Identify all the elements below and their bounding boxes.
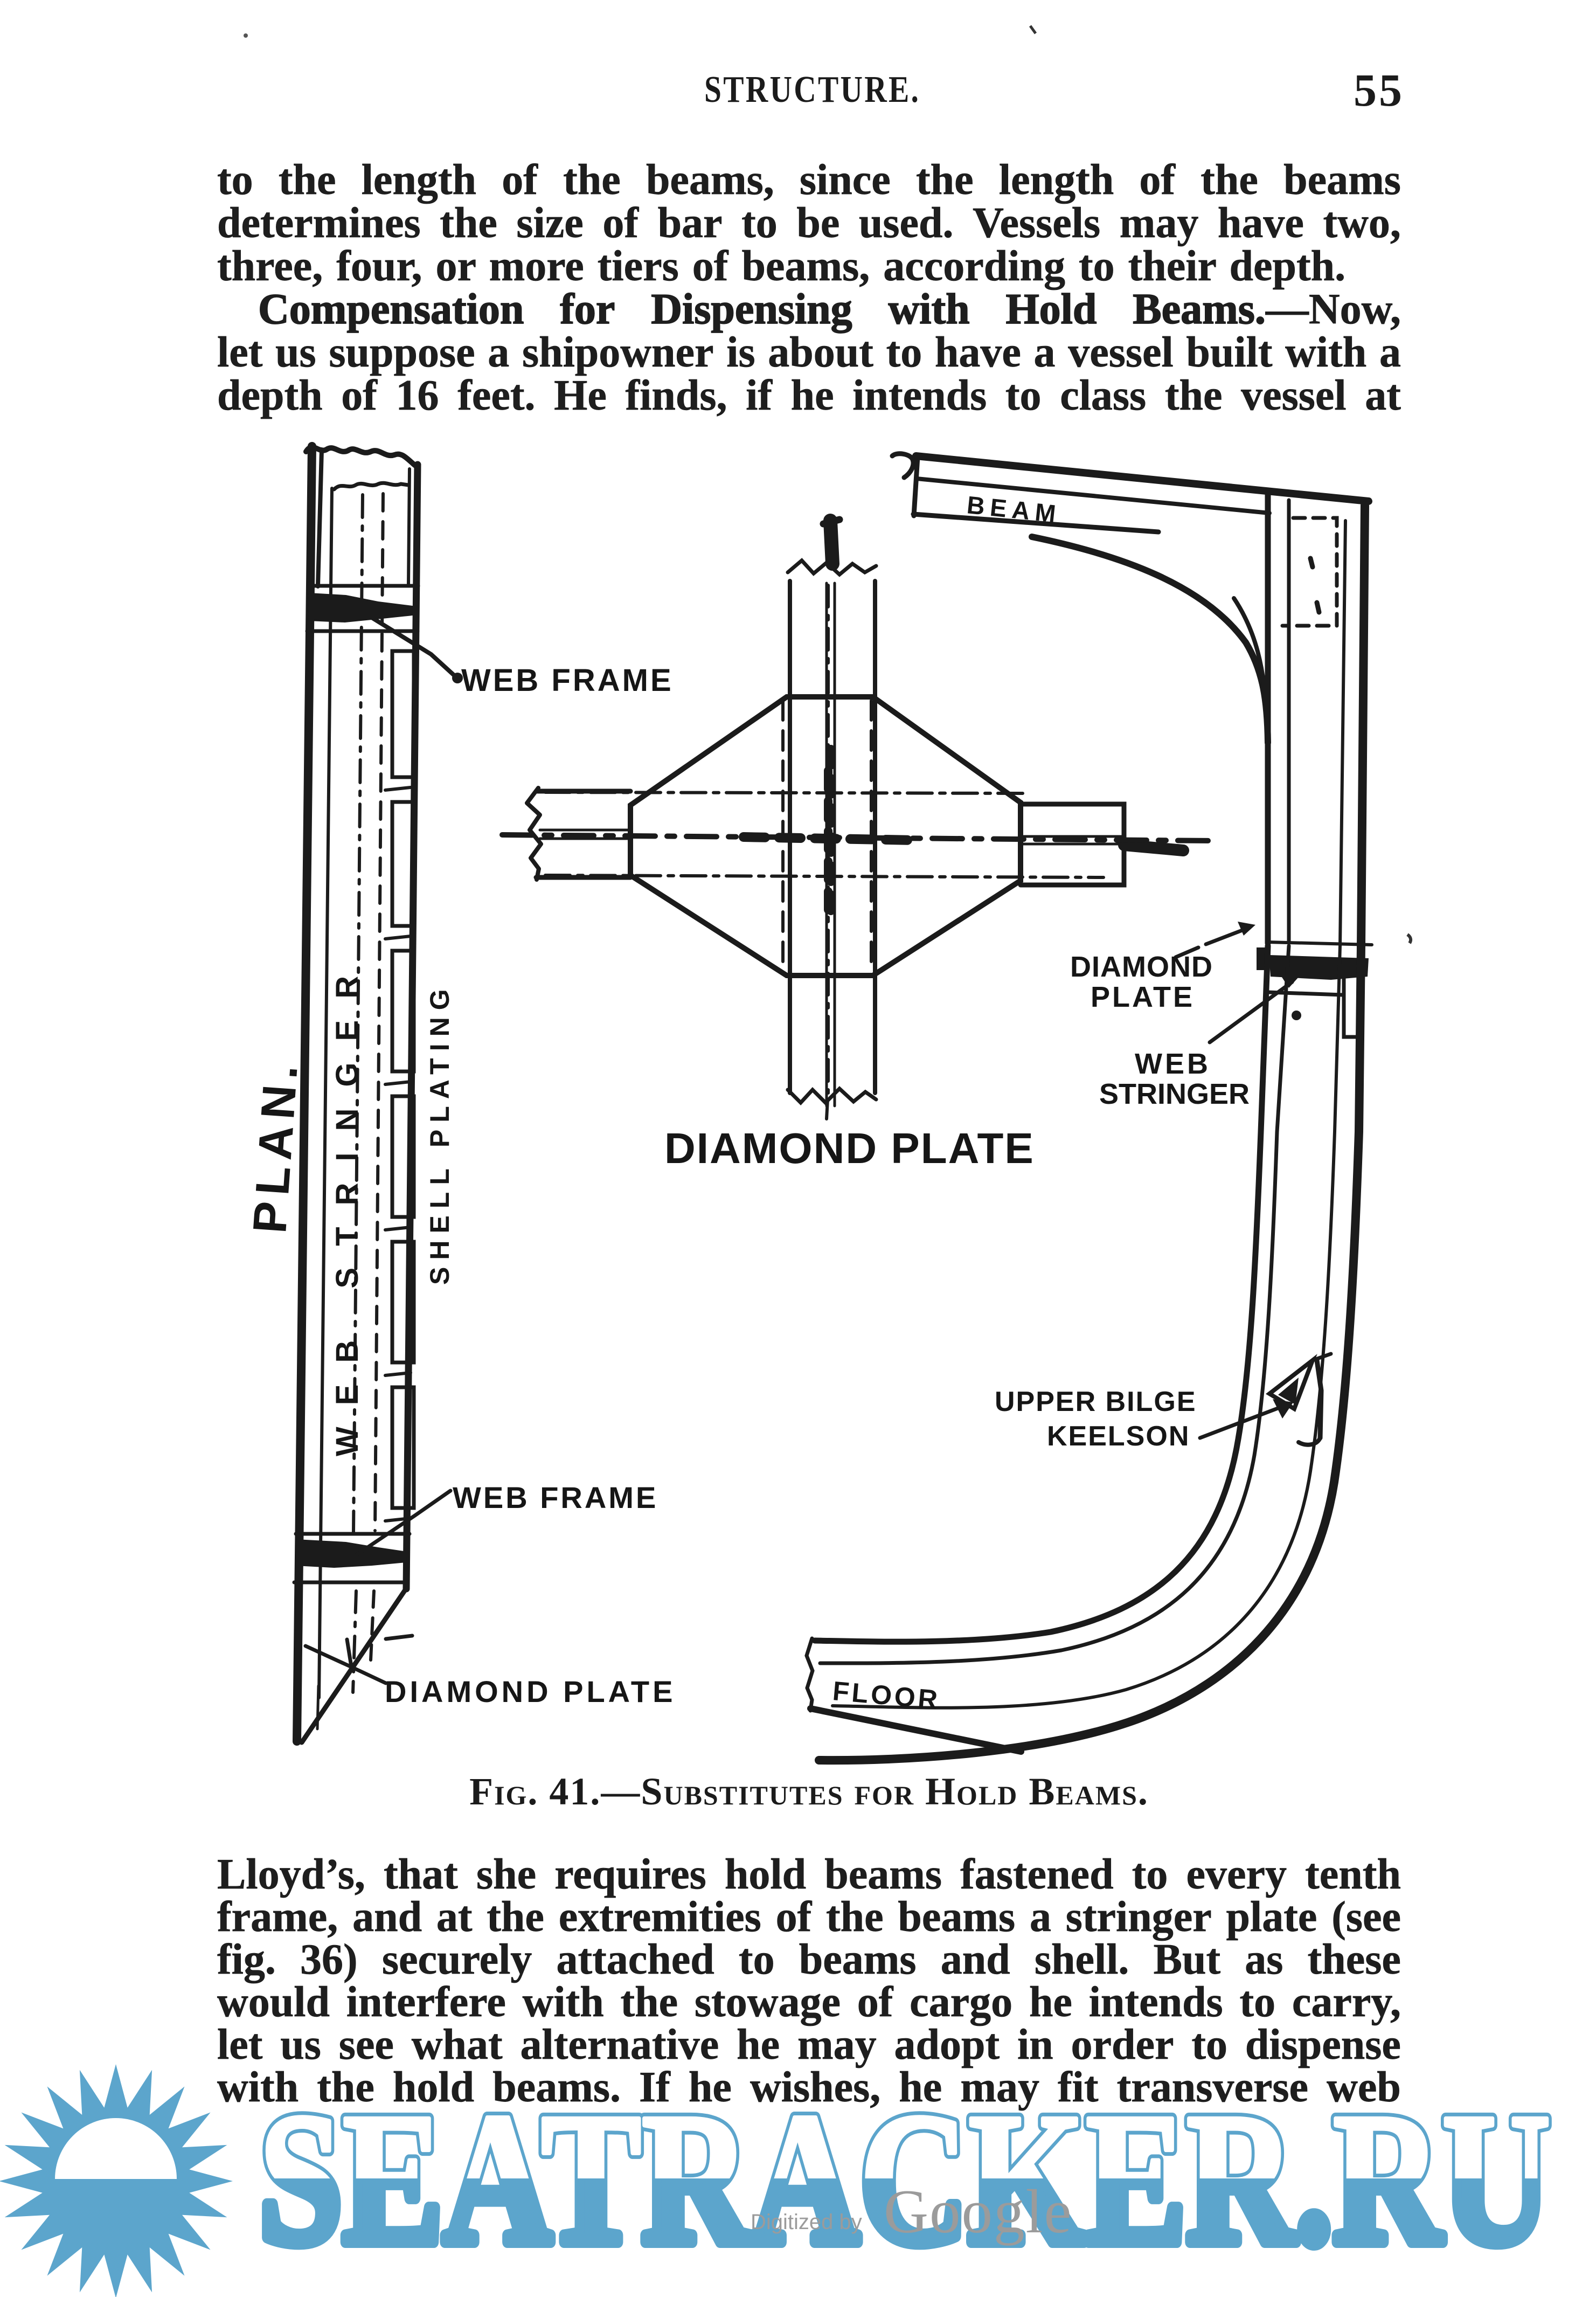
svg-text:Digitized by: Digitized by [751, 2210, 862, 2234]
svg-text:Google: Google [884, 2177, 1073, 2246]
